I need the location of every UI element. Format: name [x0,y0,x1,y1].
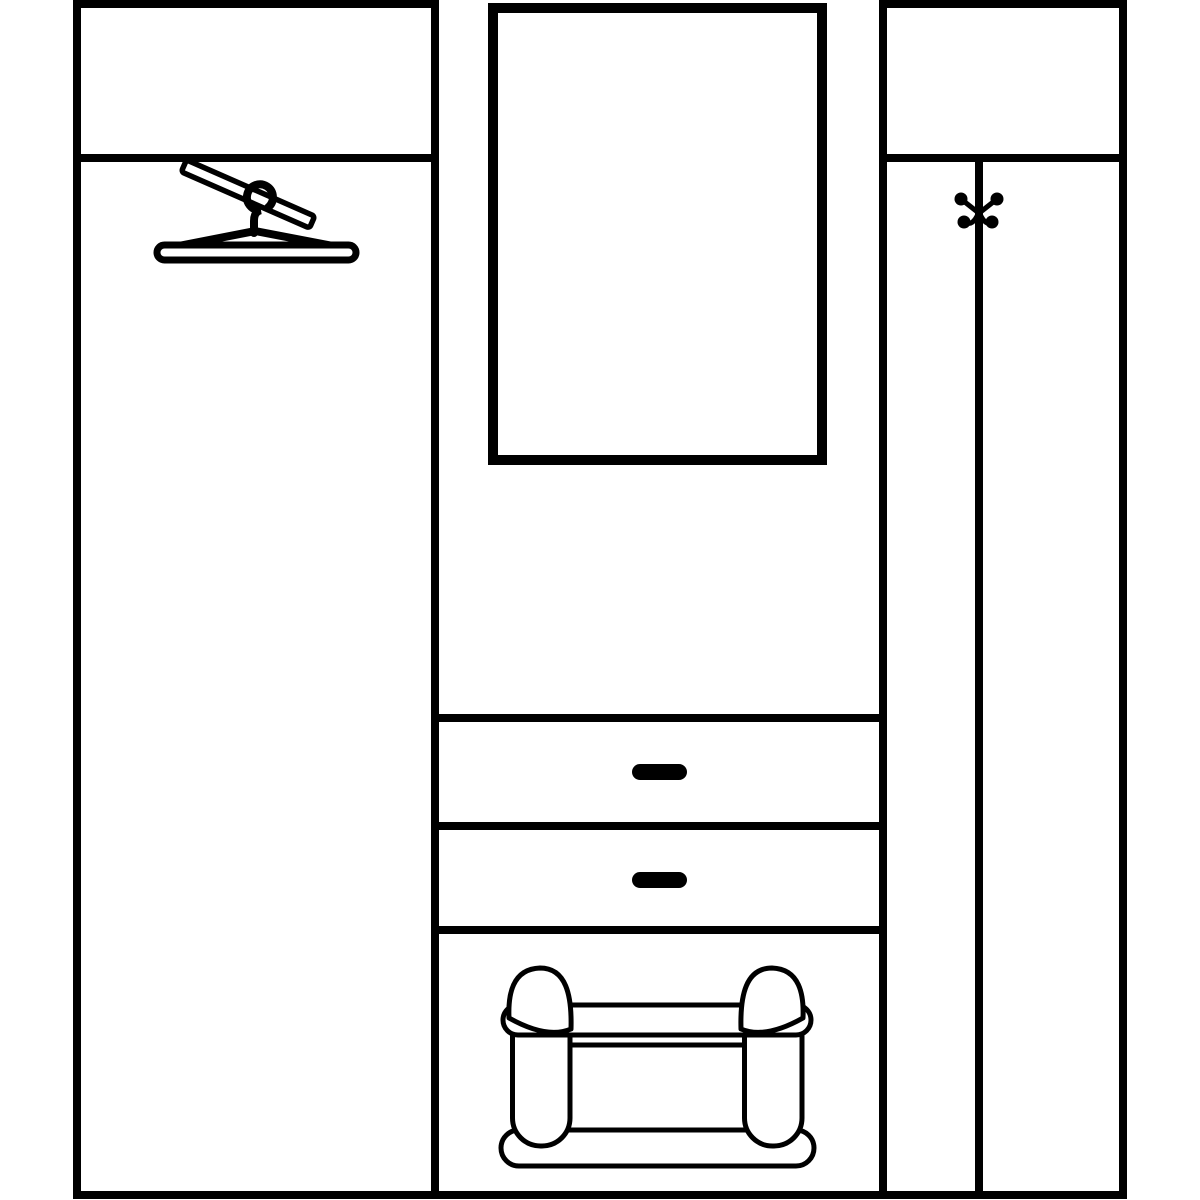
drawer-handle-top [632,764,687,780]
coat-hook-ball-top-right [991,193,1004,206]
wardrobe-set-diagram [0,0,1200,1200]
drawer-handle-bottom [632,872,687,888]
bench-left-cushion-top [509,968,571,1032]
bench-right-cushion-top [741,968,803,1032]
coat-hook-ball-bottom-left [958,216,971,229]
coat-hook-ball-top-left [955,193,968,206]
hanger-bar [157,245,356,260]
coat-hook-ball-bottom-right [986,216,999,229]
diagram-canvas [0,0,1200,1200]
